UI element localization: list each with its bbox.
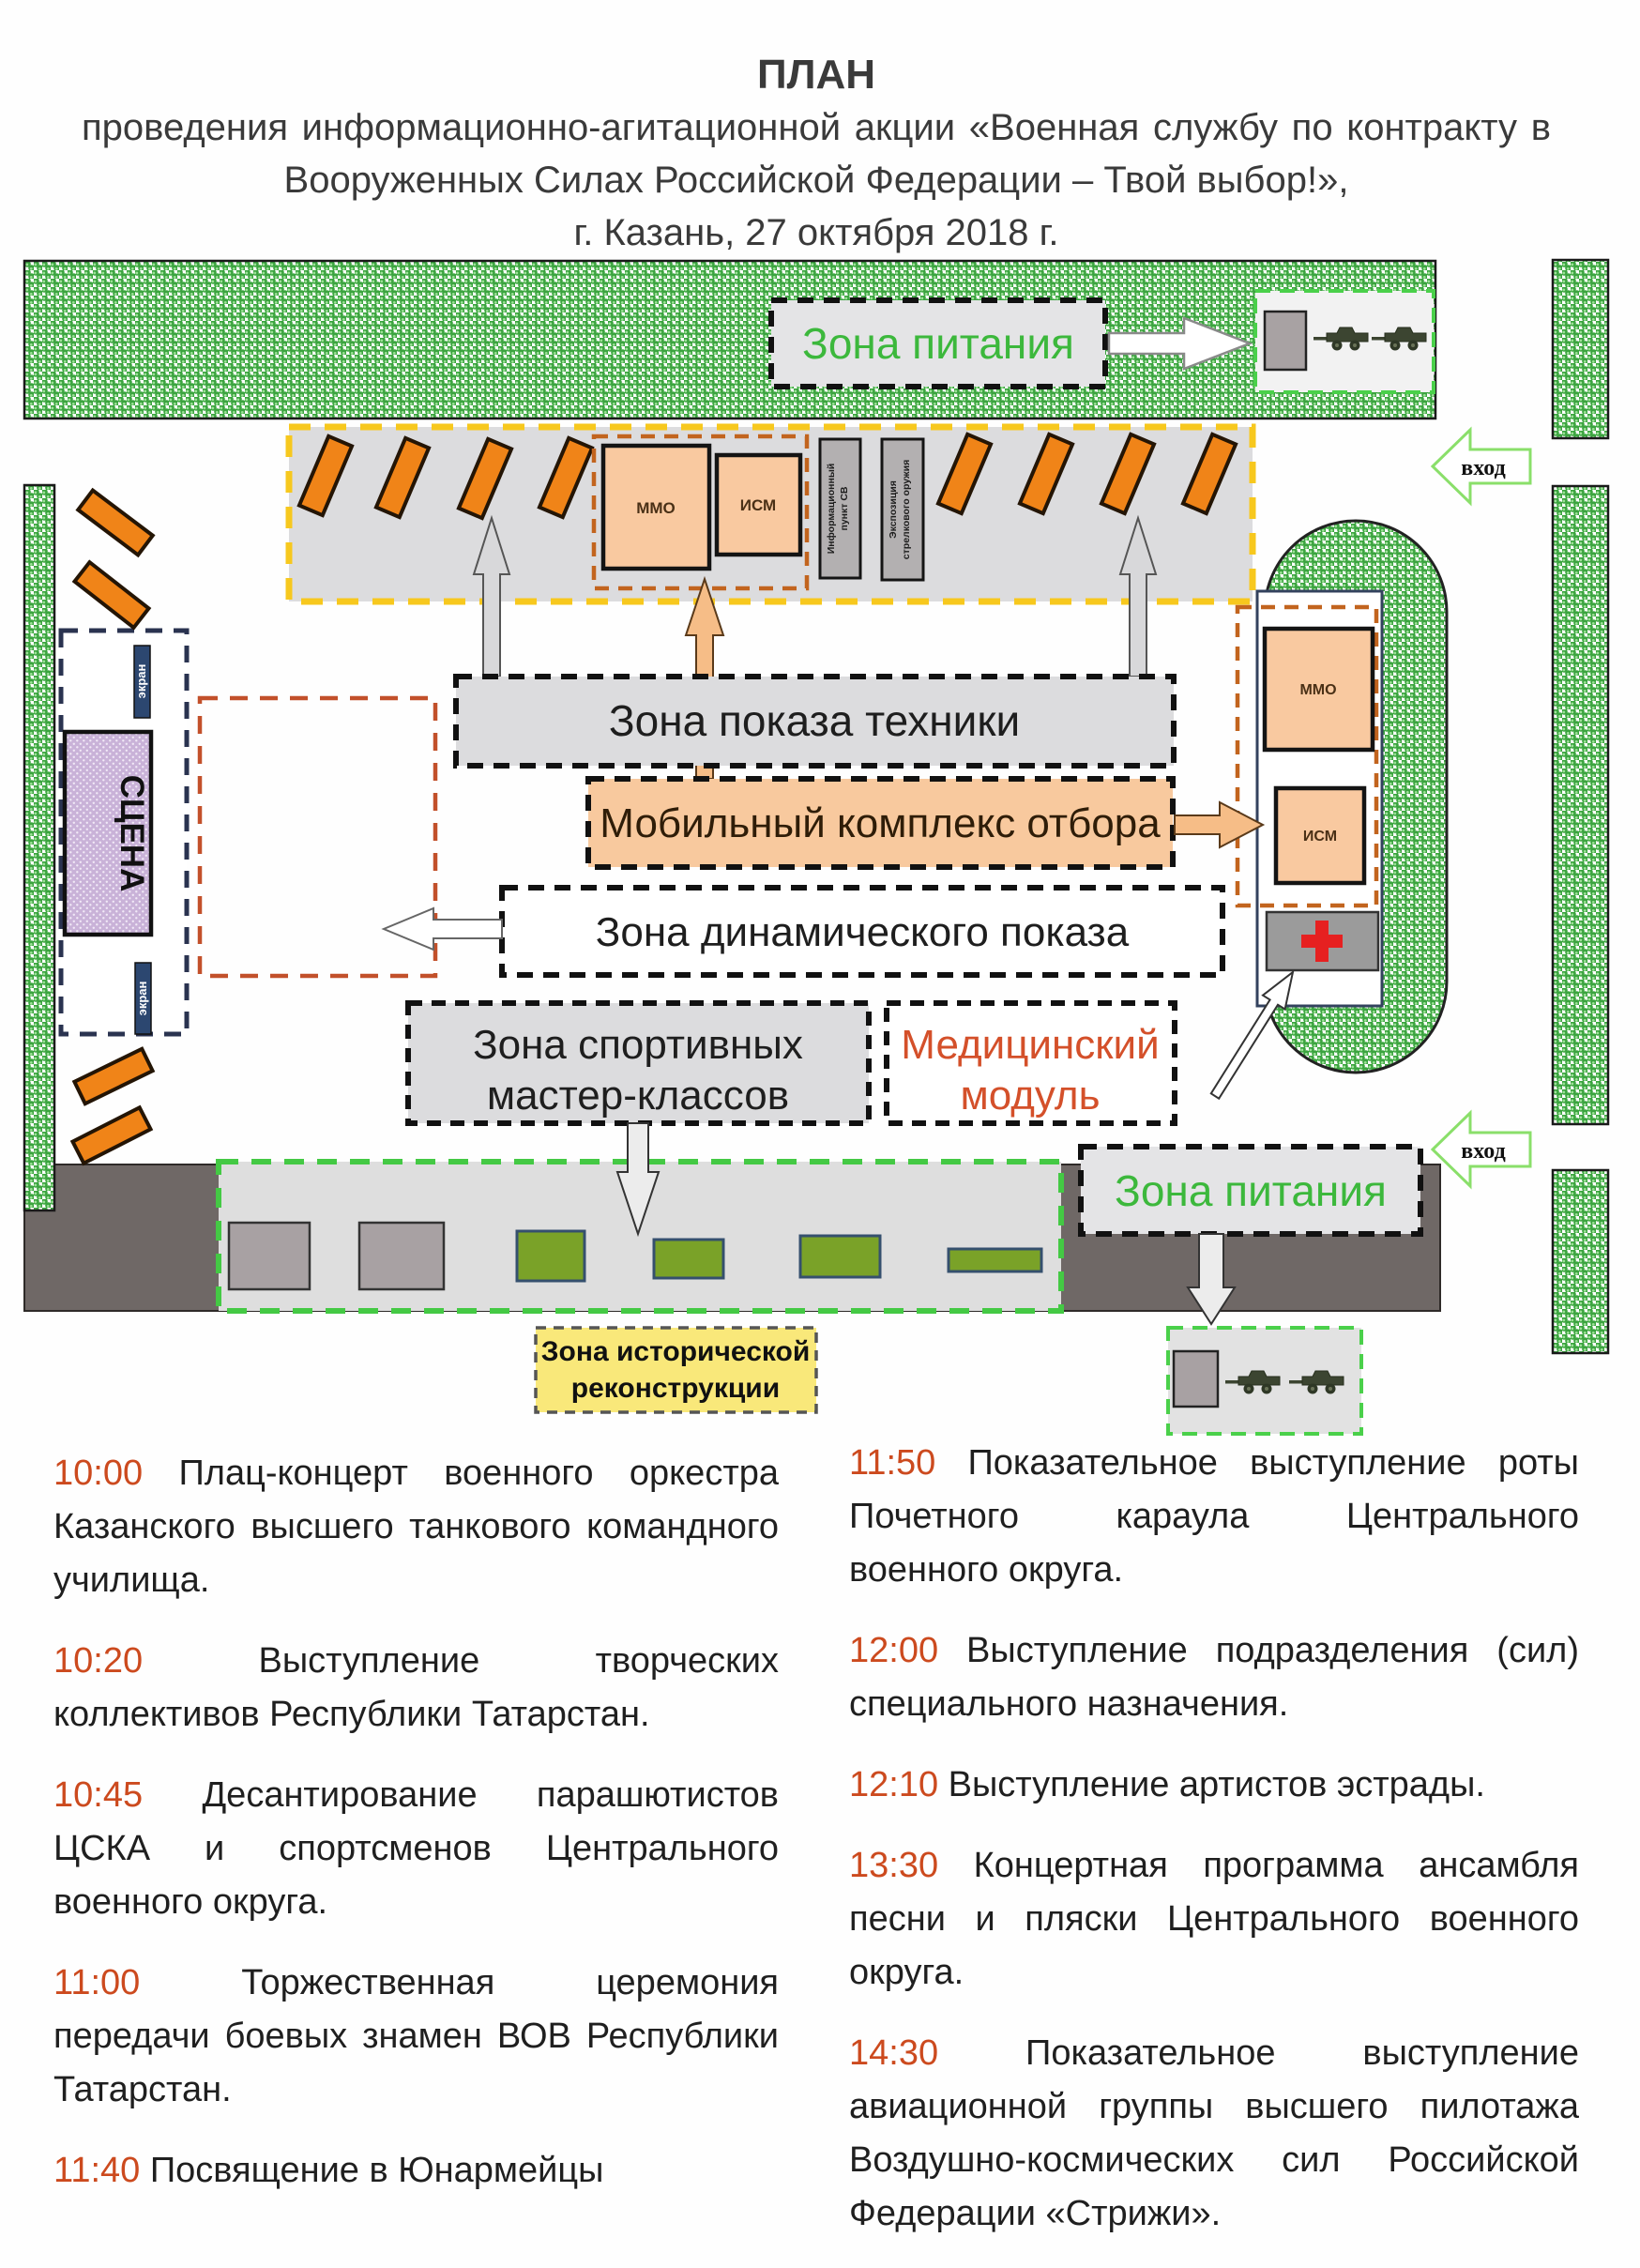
svg-text:Зона питания: Зона питания <box>802 319 1074 368</box>
svg-text:Зона питания: Зона питания <box>1115 1166 1387 1215</box>
svg-text:экран: экран <box>135 982 149 1016</box>
svg-text:Информационный: Информационный <box>826 464 837 555</box>
svg-text:Зона показа техники: Зона показа техники <box>609 696 1020 745</box>
svg-text:ММО: ММО <box>1299 682 1336 698</box>
svg-text:экран: экран <box>134 664 148 699</box>
svg-text:реконструкции: реконструкции <box>571 1373 780 1404</box>
svg-text:ИСМ: ИСМ <box>740 496 776 514</box>
svg-text:Зона исторической: Зона исторической <box>541 1336 811 1367</box>
svg-text:ММО: ММО <box>636 499 676 517</box>
svg-text:мастер-классов: мастер-классов <box>487 1073 789 1119</box>
svg-text:Медицинский: Медицинский <box>901 1022 1159 1068</box>
svg-text:модуль: модуль <box>960 1073 1100 1119</box>
svg-text:пункт СВ: пункт СВ <box>839 486 850 530</box>
svg-text:СЦЕНА: СЦЕНА <box>114 775 150 892</box>
svg-text:Мобильный комплекс отбора: Мобильный комплекс отбора <box>600 800 1161 846</box>
svg-text:Зона спортивных: Зона спортивных <box>473 1022 803 1068</box>
svg-text:стрелкового оружия: стрелкового оружия <box>901 460 912 559</box>
svg-text:вход: вход <box>1461 456 1506 480</box>
svg-text:вход: вход <box>1461 1139 1506 1164</box>
svg-text:Зона динамического показа: Зона динамического показа <box>596 909 1130 955</box>
svg-text:ИСМ: ИСМ <box>1303 829 1337 845</box>
svg-text:Экспозиция: Экспозиция <box>888 480 899 539</box>
